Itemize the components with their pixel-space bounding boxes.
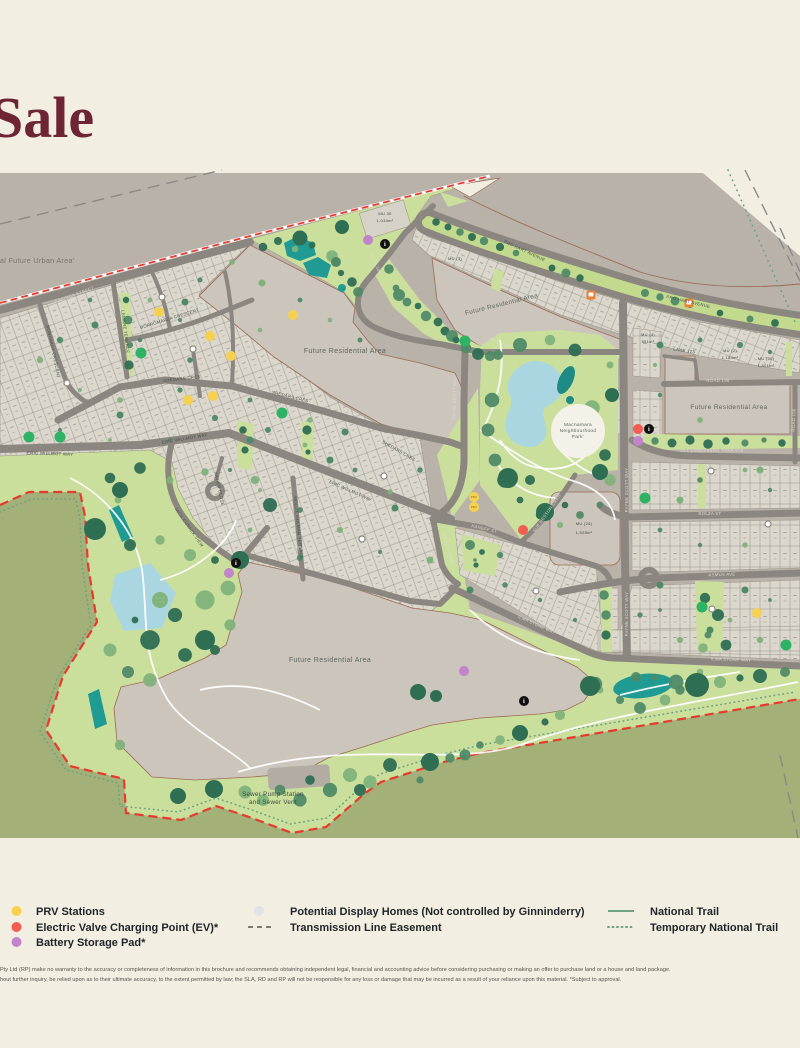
svg-text:JILL LANDSBERG TERRACE: JILL LANDSBERG TERRACE	[680, 448, 744, 453]
svg-text:MU (2): MU (2)	[723, 348, 737, 353]
svg-text:BOLZA ST: BOLZA ST	[699, 511, 722, 516]
svg-text:851m²: 851m²	[642, 339, 655, 344]
svg-text:MU (3): MU (3)	[448, 256, 462, 261]
svg-text:i: i	[384, 241, 386, 248]
svg-text:Pty Ltd (RP) make no warranty: Pty Ltd (RP) make no warranty to the acc…	[0, 967, 671, 973]
svg-text:al Future Urban Area’: al Future Urban Area’	[0, 256, 75, 265]
svg-text:PRV Stations: PRV Stations	[36, 906, 105, 918]
svg-text:ASMUS AVE: ASMUS AVE	[708, 572, 735, 578]
svg-text:and Sewer Vent: and Sewer Vent	[249, 799, 297, 806]
svg-text:Sale: Sale	[0, 85, 94, 150]
svg-text:Future Residential Area: Future Residential Area	[304, 348, 386, 355]
svg-text:Potential Display Homes (Not c: Potential Display Homes (Not controlled …	[290, 906, 585, 918]
svg-text:ROAD 156: ROAD 156	[706, 378, 729, 383]
svg-text:Macnamara: Macnamara	[564, 422, 592, 428]
svg-text:Park’: Park’	[572, 434, 584, 440]
svg-text:PRV: PRV	[471, 505, 477, 509]
svg-text:National Trail: National Trail	[650, 906, 719, 918]
svg-text:Future Residential Area: Future Residential Area	[289, 657, 371, 664]
svg-text:Temporary National Trail: Temporary National Trail	[650, 922, 778, 934]
svg-text:i: i	[523, 698, 525, 705]
svg-text:1,801m²: 1,801m²	[758, 363, 775, 368]
svg-text:MU (30): MU (30)	[758, 356, 775, 361]
svg-text:Neighbourhood: Neighbourhood	[560, 428, 597, 434]
svg-text:PRV: PRV	[471, 495, 477, 499]
svg-text:PAYNE SCOTT WAY: PAYNE SCOTT WAY	[624, 592, 629, 637]
svg-text:Electric Valve Charging Point: Electric Valve Charging Point (EV)*	[36, 922, 219, 934]
svg-text:MU (4): MU (4)	[641, 332, 655, 337]
svg-text:Transmission Line Easement: Transmission Line Easement	[290, 922, 442, 934]
svg-text:1,034m²: 1,034m²	[377, 218, 394, 223]
svg-text:hout further inquiry, be relie: hout further inquiry, be relied upon as …	[0, 977, 622, 983]
svg-text:PAYNE SCOTT WAY: PAYNE SCOTT WAY	[624, 468, 629, 513]
svg-text:1,194m²: 1,194m²	[722, 355, 739, 360]
svg-text:Battery Storage Pad*: Battery Storage Pad*	[36, 937, 146, 949]
svg-text:ROAD 156: ROAD 156	[791, 408, 797, 432]
svg-text:MU (24): MU (24)	[576, 521, 593, 526]
svg-text:MU 30: MU 30	[378, 211, 392, 216]
svg-text:Sewer Pump Station: Sewer Pump Station	[242, 791, 304, 798]
svg-text:i: i	[235, 560, 237, 567]
svg-text:1,525m²: 1,525m²	[576, 530, 593, 535]
svg-text:Future Residential Area: Future Residential Area	[690, 404, 767, 411]
svg-text:i: i	[648, 426, 650, 433]
